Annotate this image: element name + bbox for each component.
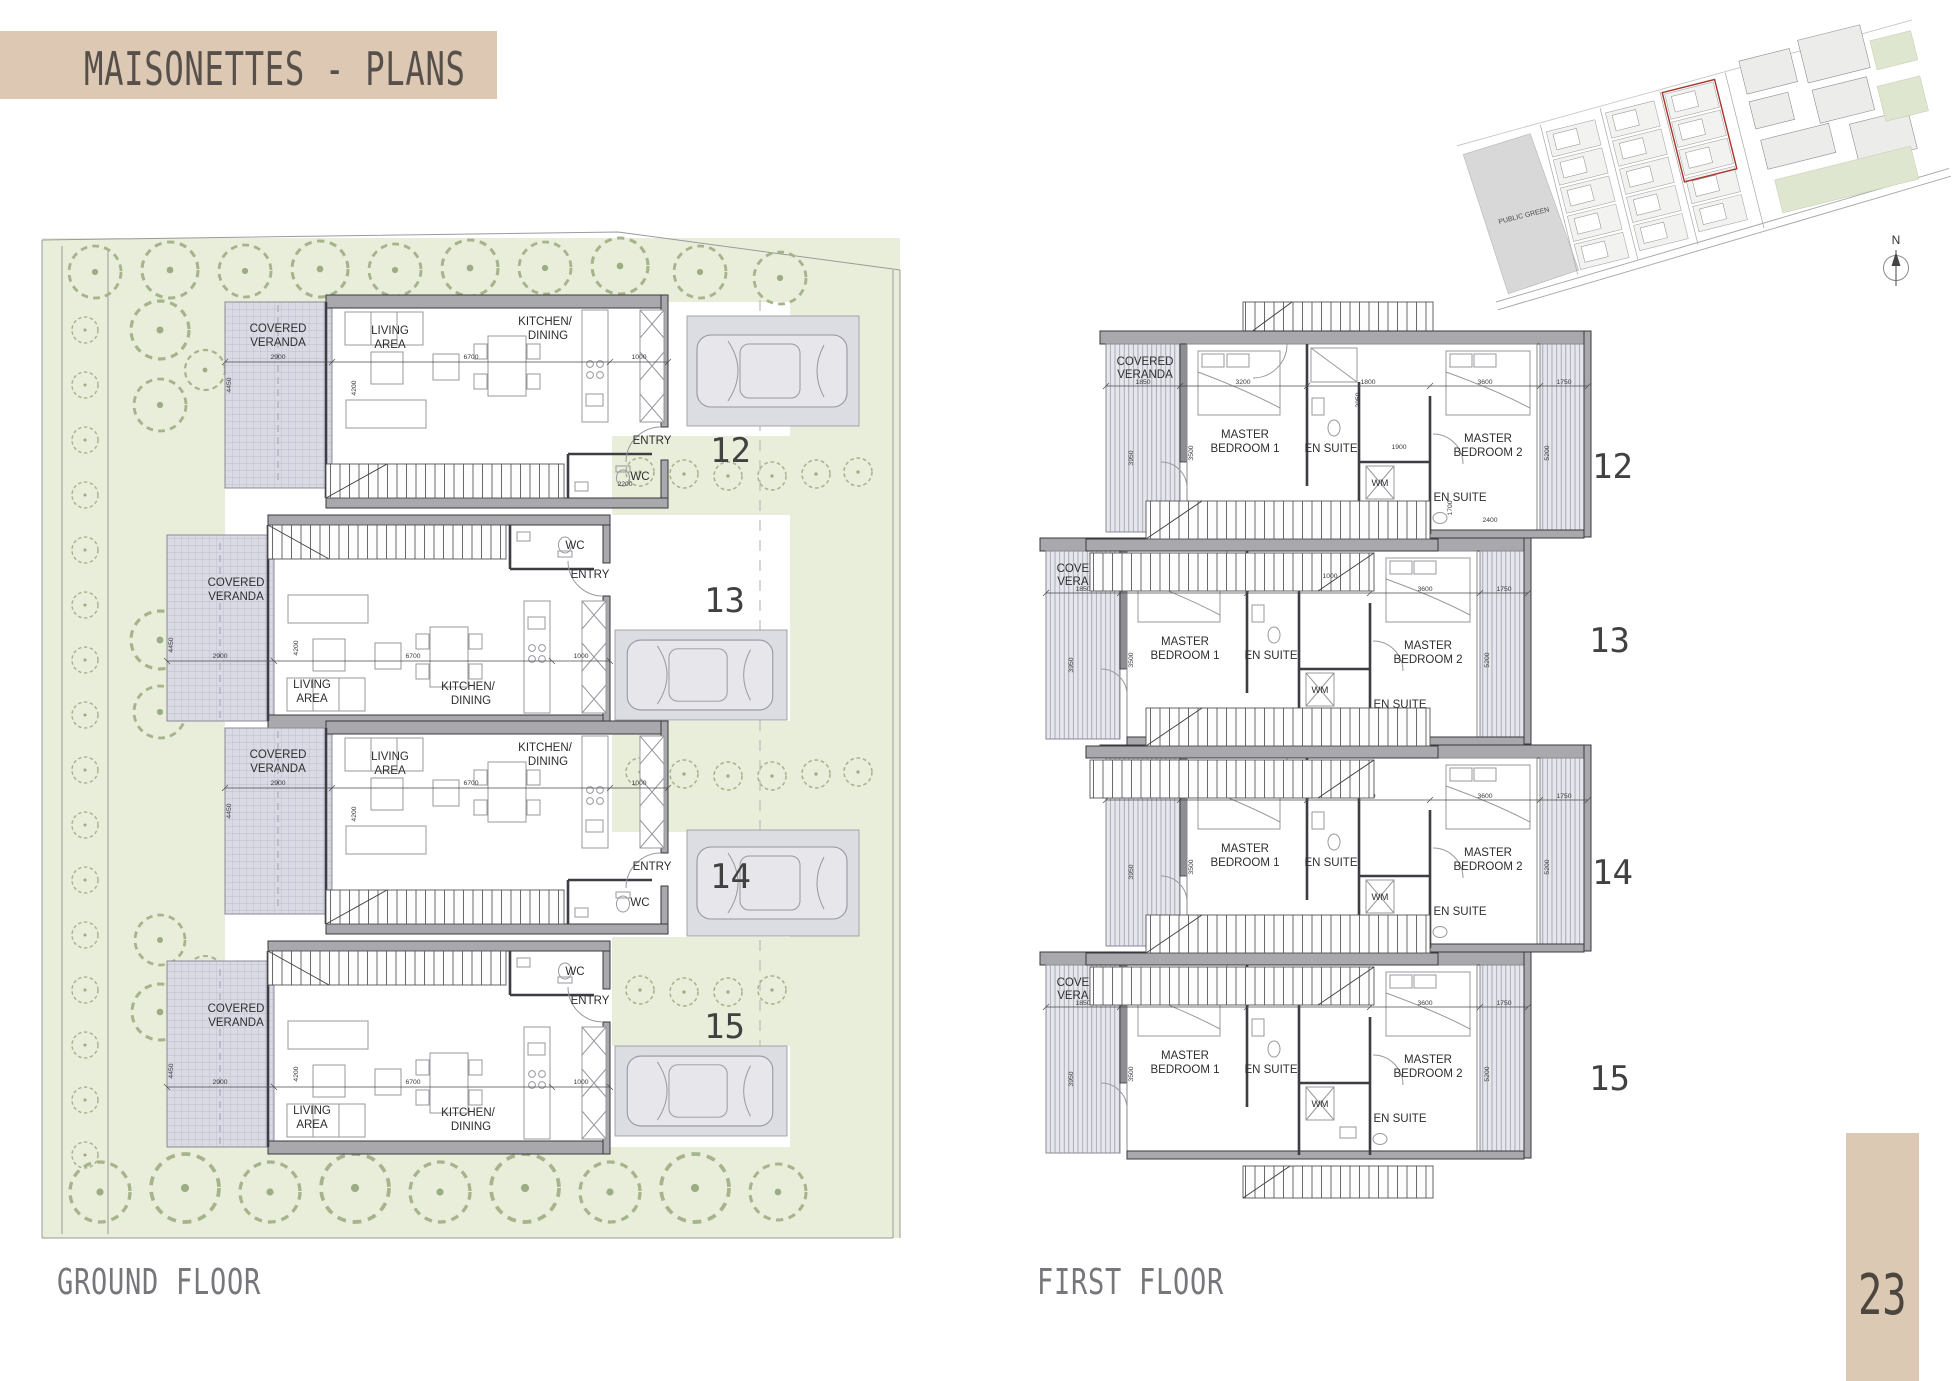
- veranda-label: VERANDA: [250, 763, 306, 775]
- plans-sheet: COVERED VERANDA 1850 3200 1800 3600 1750…: [0, 0, 1953, 1381]
- dim: 2900: [212, 1079, 227, 1086]
- site-key-plan: PUBLIC GREEN: [1452, 12, 1953, 310]
- unit-number: 15: [1589, 1059, 1630, 1099]
- gf-unit-15-shapes: [164, 941, 613, 1154]
- dim: 1000: [631, 354, 646, 361]
- dim: 1900: [1391, 444, 1406, 451]
- page-title: MAISONETTES - PLANS: [84, 42, 466, 96]
- unit-number: 12: [1592, 447, 1633, 487]
- first-floor-caption: FIRST FLOOR: [1037, 1262, 1224, 1303]
- dim: 6700: [463, 354, 478, 361]
- entry-label: ENTRY: [571, 569, 610, 581]
- unit-number: 14: [1592, 853, 1633, 893]
- veranda-label: COVERED: [208, 1003, 265, 1015]
- living-label: LIVING: [371, 751, 409, 763]
- dim: 4450: [226, 803, 233, 818]
- ground-floor-plan: COVERED VERANDA LIVING AREA KITCHEN/ DIN…: [42, 232, 900, 1238]
- dim: 6700: [405, 1079, 420, 1086]
- dim: 4450: [168, 637, 175, 652]
- veranda-label: COVERED: [250, 749, 307, 761]
- gf-unit-13-shapes: [164, 515, 613, 728]
- living-label: AREA: [296, 1119, 328, 1131]
- first-floor-plan: 2400 1700 2950 1900 1000 12 13 14 15: [1040, 302, 1633, 1198]
- unit-number: 13: [704, 581, 745, 621]
- page-number: 23: [1858, 1263, 1907, 1328]
- entry-label: ENTRY: [633, 435, 672, 447]
- page-number-tab: 23: [1846, 1133, 1919, 1381]
- wc-label: WC: [565, 966, 584, 978]
- dim: 2950: [1355, 392, 1362, 407]
- kitchen-label: DINING: [528, 330, 568, 342]
- dim: 2900: [270, 354, 285, 361]
- dim: 2900: [270, 780, 285, 787]
- dim: 4450: [168, 1063, 175, 1078]
- veranda-label: COVERED: [250, 323, 307, 335]
- entry-label: ENTRY: [633, 861, 672, 873]
- kitchen-label: KITCHEN/: [518, 742, 572, 754]
- dim: 6700: [405, 653, 420, 660]
- dim: 4200: [351, 380, 358, 395]
- wc-label: WC: [565, 540, 584, 552]
- site-lots: [1544, 82, 1749, 270]
- living-label: LIVING: [293, 679, 331, 691]
- dim: 1700: [1447, 500, 1454, 515]
- dim: 2900: [212, 653, 227, 660]
- dim: 6700: [463, 780, 478, 787]
- ground-floor-caption: GROUND FLOOR: [57, 1262, 261, 1303]
- wc-label: WC: [630, 471, 649, 483]
- kitchen-label: KITCHEN/: [441, 681, 495, 693]
- veranda-label: VERANDA: [208, 591, 264, 603]
- veranda-label: COVERED: [208, 577, 265, 589]
- kitchen-label: DINING: [451, 695, 491, 707]
- dim: 2400: [1482, 517, 1497, 524]
- dim: 1000: [1322, 573, 1337, 580]
- veranda-label: VERANDA: [208, 1017, 264, 1029]
- dim: 4200: [293, 1066, 300, 1081]
- dim: 1000: [573, 1079, 588, 1086]
- kitchen-label: DINING: [528, 756, 568, 768]
- unit-number: 12: [710, 431, 751, 471]
- kitchen-label: KITCHEN/: [441, 1107, 495, 1119]
- north-label: N: [1892, 233, 1901, 247]
- living-label: LIVING: [293, 1105, 331, 1117]
- dim: 4200: [351, 806, 358, 821]
- kitchen-label: KITCHEN/: [518, 316, 572, 328]
- dim: 1000: [573, 653, 588, 660]
- north-arrow: N: [1884, 233, 1909, 286]
- living-label: LIVING: [371, 325, 409, 337]
- unit-number: 14: [710, 857, 751, 897]
- kitchen-label: DINING: [451, 1121, 491, 1133]
- living-label: AREA: [374, 339, 406, 351]
- unit-number: 15: [704, 1007, 745, 1047]
- dim: 4200: [293, 640, 300, 655]
- entry-label: ENTRY: [571, 995, 610, 1007]
- living-label: AREA: [374, 765, 406, 777]
- veranda-label: VERANDA: [250, 337, 306, 349]
- living-label: AREA: [296, 693, 328, 705]
- dim: 4450: [226, 377, 233, 392]
- unit-number: 13: [1589, 621, 1630, 661]
- stair-protrusion-bottom: [1243, 1166, 1433, 1198]
- dim: 1000: [631, 780, 646, 787]
- wc-label: WC: [630, 897, 649, 909]
- site-blocks-east: [1737, 13, 1946, 214]
